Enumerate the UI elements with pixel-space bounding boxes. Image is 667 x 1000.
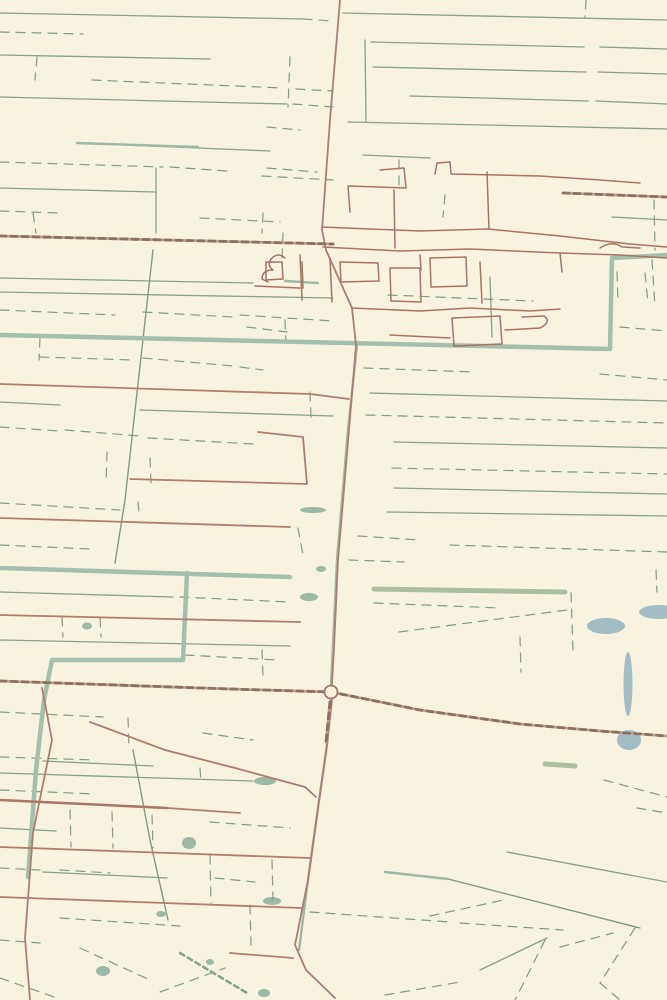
map-viewport[interactable] xyxy=(0,0,667,1000)
teal-waters-feature xyxy=(156,911,166,917)
layer-roundabouts xyxy=(325,686,338,699)
teal-waters-feature xyxy=(206,959,214,965)
village-roads-feature xyxy=(394,190,395,248)
map-canvas[interactable] xyxy=(0,0,667,1000)
ponds-feature xyxy=(624,652,633,716)
teal-waters-feature xyxy=(300,507,326,513)
teal-waters-feature xyxy=(316,566,326,572)
green-strips-feature xyxy=(374,589,565,592)
village-roads-feature xyxy=(420,255,421,270)
teal-waters-feature xyxy=(300,593,318,601)
teal-waters-feature xyxy=(258,989,270,997)
teal-waters-feature xyxy=(263,897,281,905)
teal-waters-feature xyxy=(82,623,92,630)
green-strips-feature xyxy=(545,764,575,766)
teal-waters-feature xyxy=(182,837,196,849)
teal-waters-feature xyxy=(96,966,110,976)
roundabouts-feature xyxy=(325,686,338,699)
ponds-feature xyxy=(587,618,625,634)
